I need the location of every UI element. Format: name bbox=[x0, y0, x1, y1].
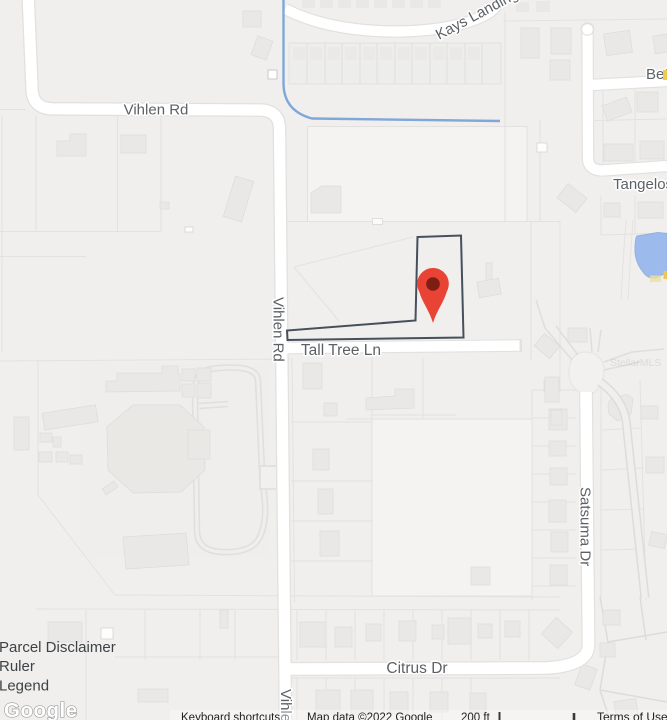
svg-text:Keyboard shortcuts: Keyboard shortcuts bbox=[181, 712, 280, 720]
svg-text:Parcel Disclaimer: Parcel Disclaimer bbox=[0, 639, 116, 656]
svg-text:Map data ©2022 Google: Map data ©2022 Google bbox=[307, 712, 432, 720]
svg-text:StellarMLS: StellarMLS bbox=[610, 357, 661, 369]
svg-text:Vihlen Rd: Vihlen Rd bbox=[270, 297, 287, 362]
svg-text:200 ft: 200 ft bbox=[461, 712, 491, 720]
svg-text:Terms of Use: Terms of Use bbox=[597, 710, 667, 720]
svg-text:Citrus Dr: Citrus Dr bbox=[386, 660, 447, 677]
svg-text:Google: Google bbox=[4, 699, 78, 720]
svg-text:Legend: Legend bbox=[0, 678, 49, 695]
svg-text:Tangelos: Tangelos bbox=[613, 176, 667, 193]
svg-text:Ruler: Ruler bbox=[0, 658, 35, 675]
svg-text:Satsuma Dr: Satsuma Dr bbox=[577, 487, 594, 566]
svg-text:Tall Tree Ln: Tall Tree Ln bbox=[301, 342, 381, 359]
svg-text:Vihlen Rd: Vihlen Rd bbox=[124, 102, 189, 119]
